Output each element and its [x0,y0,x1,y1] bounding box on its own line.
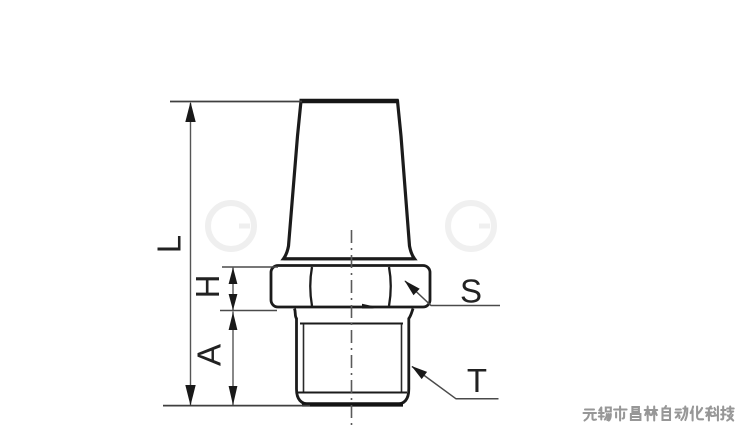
svg-text:H: H [189,275,226,299]
svg-text:A: A [191,344,228,366]
svg-text:L: L [151,235,188,253]
svg-text:S: S [460,273,482,310]
svg-text:T: T [467,362,487,399]
